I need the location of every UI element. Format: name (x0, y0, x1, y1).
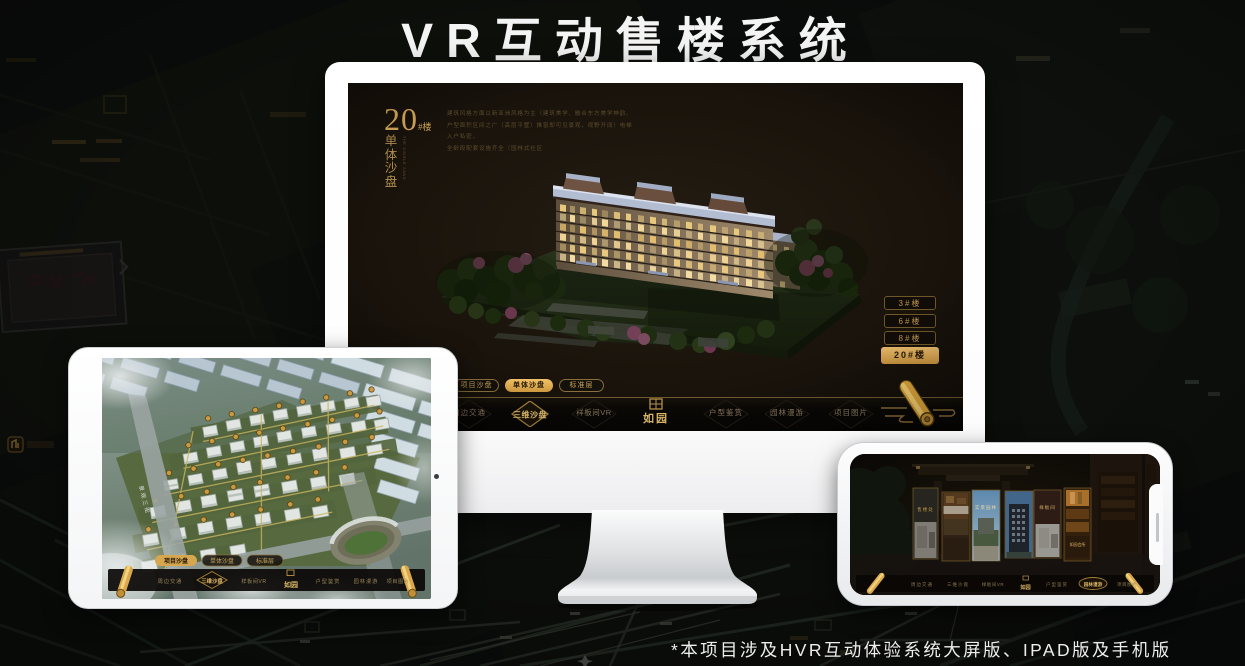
svg-text:如园: 如园 (284, 580, 298, 589)
svg-text:周边交通: 周边交通 (158, 577, 183, 585)
svg-text:户型鉴赏: 户型鉴赏 (1046, 581, 1068, 588)
svg-text:项目图片: 项目图片 (387, 577, 410, 585)
svg-text:项目图片: 项目图片 (1117, 581, 1137, 588)
svg-text:单体沙盘: 单体沙盘 (210, 557, 234, 565)
svg-text:标准层: 标准层 (256, 557, 274, 565)
svg-text:样板间: 样板间 (1039, 504, 1056, 511)
svg-text:园林漫游: 园林漫游 (1084, 581, 1103, 588)
svg-text:售楼处: 售楼处 (917, 506, 934, 513)
svg-text:样板间VR: 样板间VR (241, 577, 266, 585)
svg-text:项目沙盘: 项目沙盘 (164, 557, 188, 565)
svg-text:样板间VR: 样板间VR (982, 581, 1005, 588)
svg-text:周边交通: 周边交通 (911, 581, 933, 588)
svg-text:如园会所: 如园会所 (1070, 541, 1086, 547)
svg-text:如园: 如园 (1020, 583, 1030, 591)
svg-text:园林漫游: 园林漫游 (354, 577, 379, 585)
svg-text:三维沙盘: 三维沙盘 (947, 581, 969, 588)
svg-text:户型鉴赏: 户型鉴赏 (316, 577, 341, 585)
svg-text:实景园林: 实景园林 (975, 504, 997, 511)
svg-text:三维沙盘: 三维沙盘 (201, 577, 223, 585)
